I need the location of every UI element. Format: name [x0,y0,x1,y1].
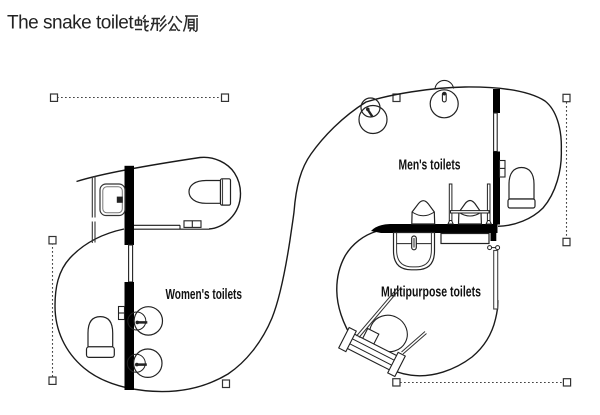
svg-text:Women's toilets: Women's toilets [166,286,243,303]
svg-text:Multipurpose toilets: Multipurpose toilets [381,284,481,301]
svg-text:Men's toilets: Men's toilets [399,157,461,174]
svg-text:The snake toilet: The snake toilet [7,13,134,34]
